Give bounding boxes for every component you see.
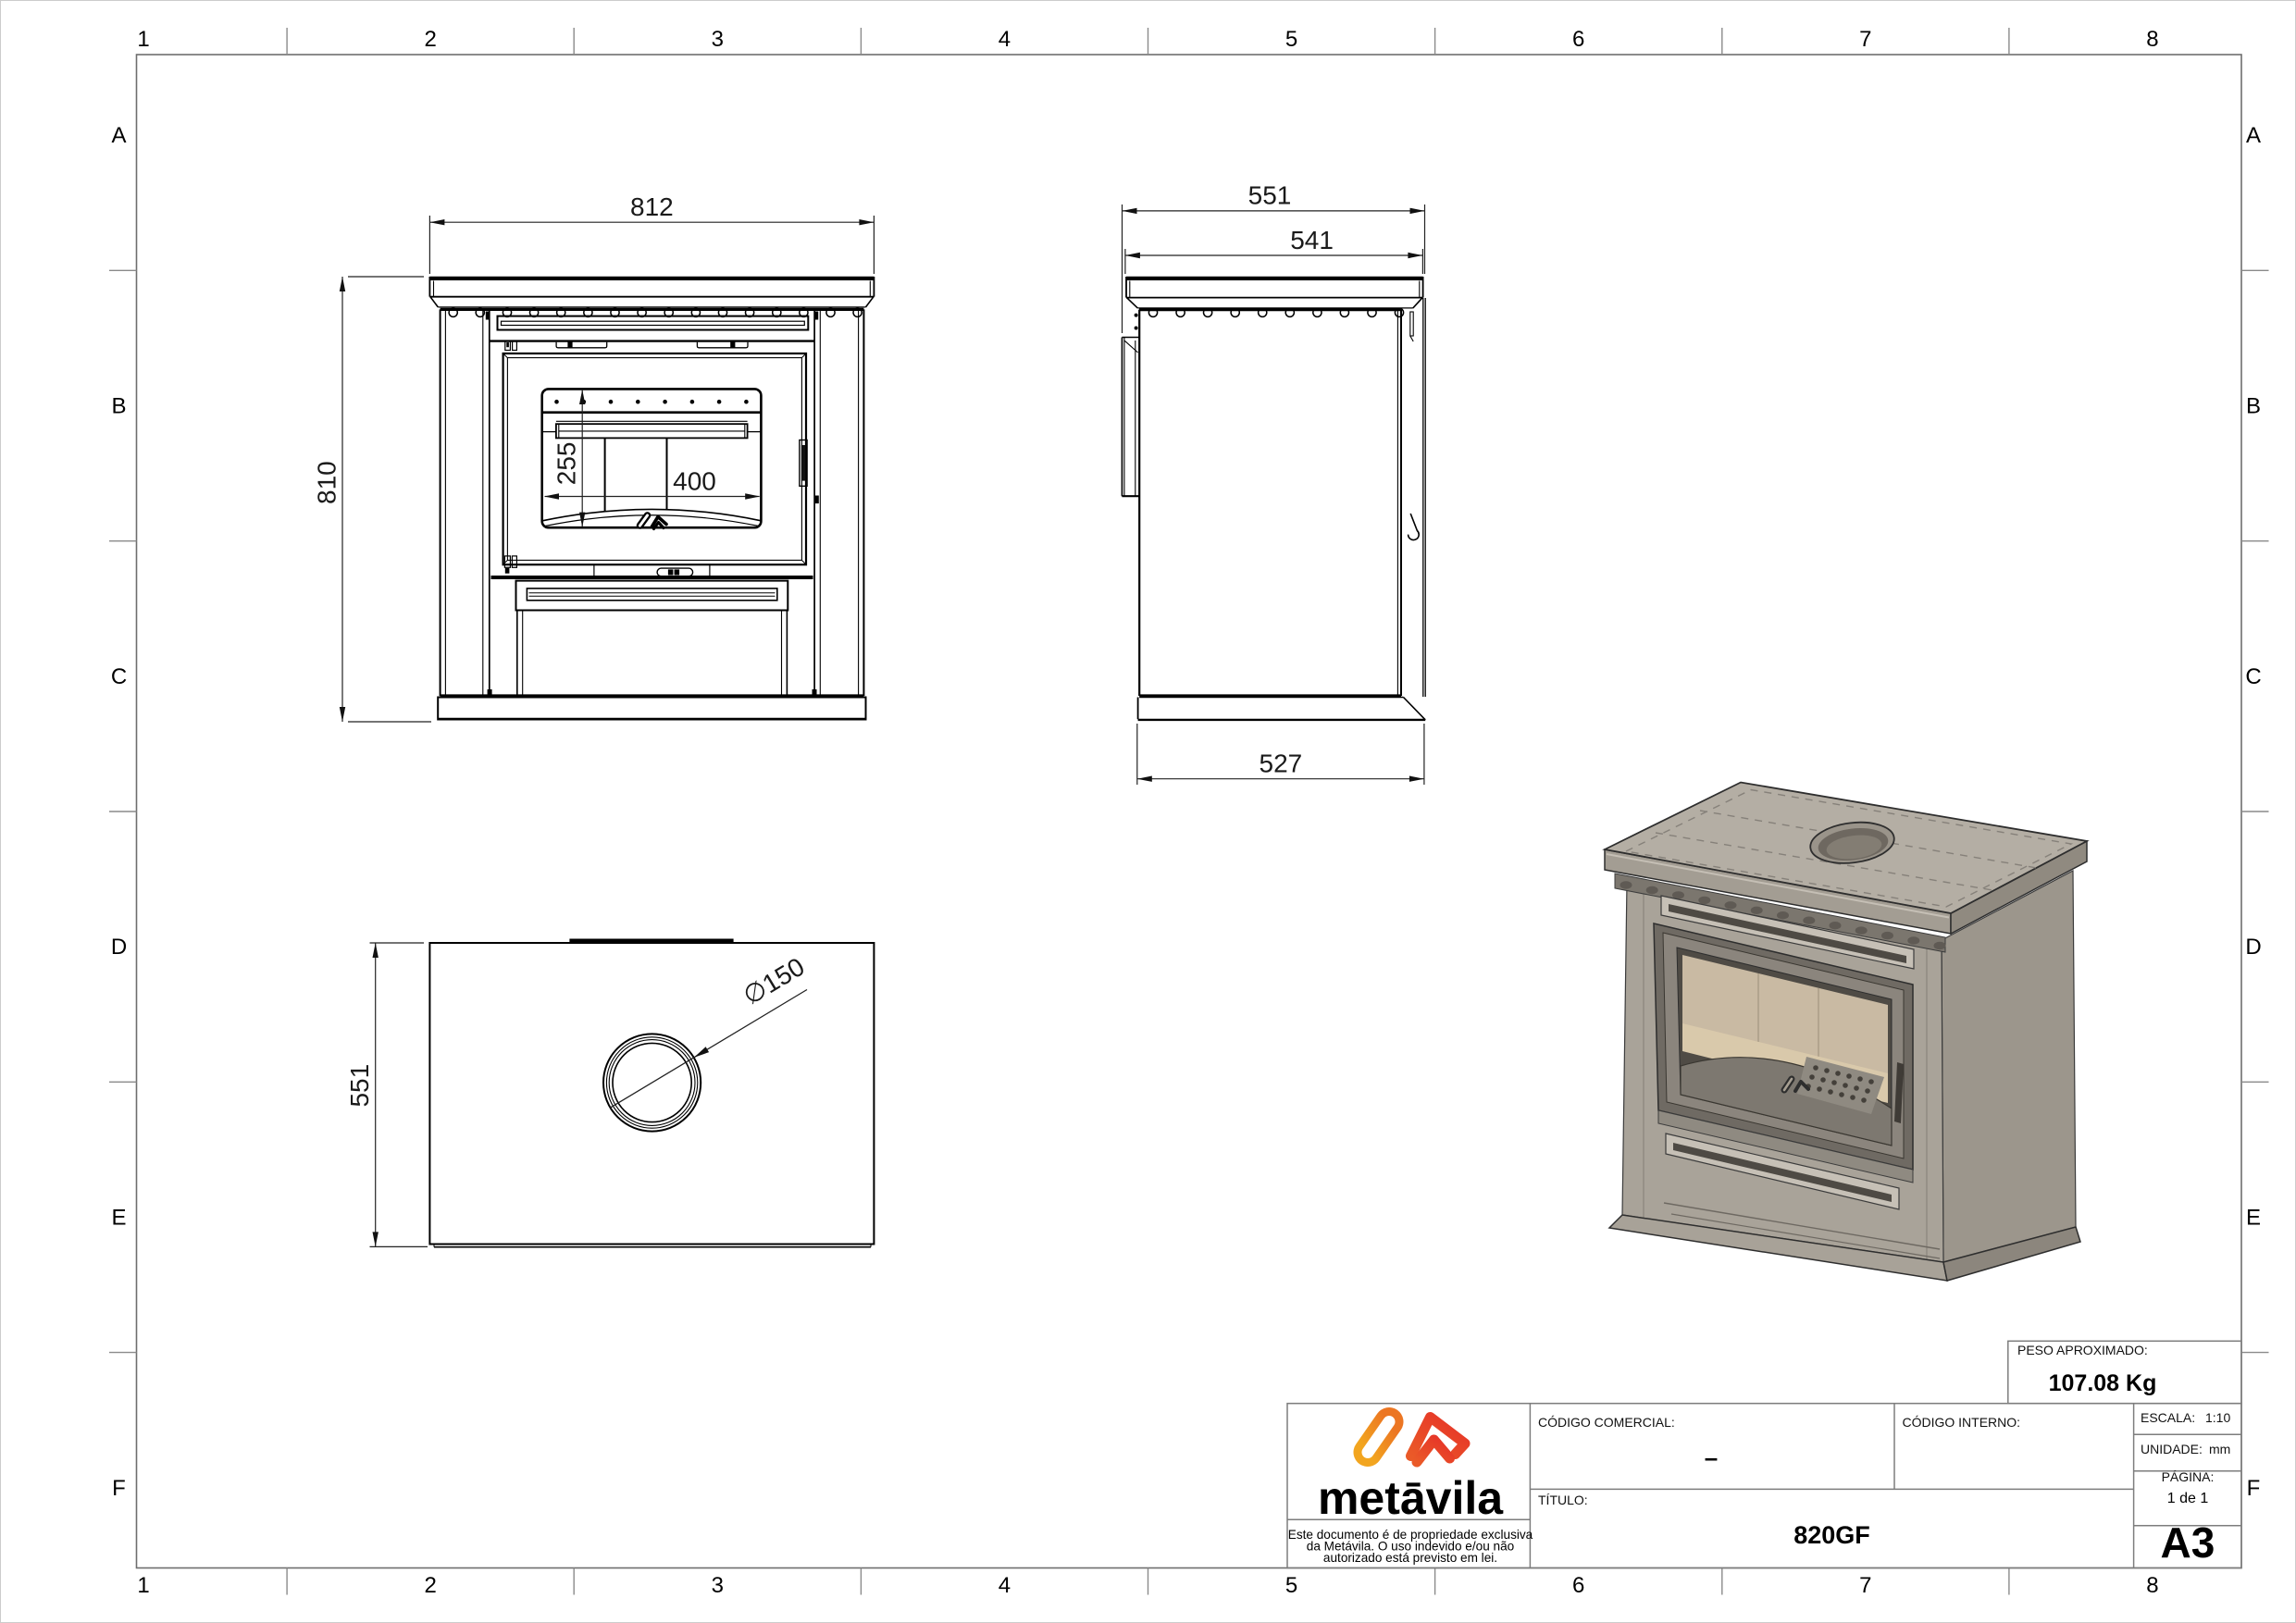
svg-text:TÍTULO:: TÍTULO: bbox=[1538, 1493, 1588, 1507]
svg-text:1: 1 bbox=[137, 27, 149, 52]
svg-text:551: 551 bbox=[345, 1064, 374, 1108]
svg-text:C: C bbox=[2245, 664, 2261, 689]
svg-text:107.08 Kg: 107.08 Kg bbox=[2049, 1370, 2157, 1396]
svg-text:2: 2 bbox=[425, 27, 437, 52]
svg-text:A3: A3 bbox=[2160, 1518, 2215, 1567]
svg-text:3: 3 bbox=[712, 27, 724, 52]
svg-text:8: 8 bbox=[2146, 27, 2158, 52]
svg-text:CÓDIGO COMERCIAL:: CÓDIGO COMERCIAL: bbox=[1538, 1415, 1675, 1430]
svg-text:CÓDIGO INTERNO:: CÓDIGO INTERNO: bbox=[1903, 1415, 2021, 1430]
svg-text:7: 7 bbox=[1859, 27, 1871, 52]
svg-text:7: 7 bbox=[1859, 1573, 1871, 1598]
svg-text:5: 5 bbox=[1285, 27, 1297, 52]
svg-text:810: 810 bbox=[313, 461, 341, 504]
svg-text:D: D bbox=[111, 935, 127, 960]
svg-text:812: 812 bbox=[630, 192, 674, 221]
svg-text:2: 2 bbox=[425, 1573, 437, 1598]
svg-text:400: 400 bbox=[673, 467, 716, 496]
svg-text:6: 6 bbox=[1572, 27, 1584, 52]
svg-text:mm: mm bbox=[2209, 1442, 2230, 1456]
svg-text:1 de 1: 1 de 1 bbox=[2167, 1491, 2209, 1506]
svg-text:A: A bbox=[2246, 123, 2261, 148]
svg-text:C: C bbox=[111, 664, 127, 689]
svg-text:metāvila: metāvila bbox=[1318, 1472, 1504, 1524]
svg-text:B: B bbox=[111, 394, 126, 419]
svg-text:541: 541 bbox=[1290, 226, 1334, 254]
svg-text:ESCALA:: ESCALA: bbox=[2141, 1410, 2195, 1425]
svg-text:E: E bbox=[2246, 1206, 2261, 1231]
svg-text:6: 6 bbox=[1572, 1573, 1584, 1598]
svg-text:8: 8 bbox=[2146, 1573, 2158, 1598]
svg-text:UNIDADE:: UNIDADE: bbox=[2141, 1442, 2203, 1456]
svg-text:A: A bbox=[111, 123, 126, 148]
svg-text:255: 255 bbox=[552, 442, 581, 486]
svg-text:5: 5 bbox=[1285, 1573, 1297, 1598]
svg-text:autorizado está previsto em le: autorizado está previsto em lei. bbox=[1323, 1551, 1497, 1565]
svg-text:F: F bbox=[2247, 1476, 2261, 1501]
svg-text:820GF: 820GF bbox=[1793, 1521, 1870, 1549]
svg-text:–: – bbox=[1705, 1443, 1718, 1471]
svg-text:527: 527 bbox=[1260, 750, 1303, 778]
svg-text:F: F bbox=[112, 1476, 126, 1501]
svg-text:D: D bbox=[2245, 935, 2261, 960]
svg-text:551: 551 bbox=[1248, 181, 1292, 210]
svg-text:4: 4 bbox=[999, 1573, 1011, 1598]
svg-text:1: 1 bbox=[137, 1573, 149, 1598]
svg-text:PESO APROXIMADO:: PESO APROXIMADO: bbox=[2017, 1343, 2148, 1357]
svg-text:4: 4 bbox=[999, 27, 1011, 52]
svg-text:PÁGINA:: PÁGINA: bbox=[2162, 1469, 2215, 1484]
svg-text:1:10: 1:10 bbox=[2205, 1410, 2230, 1425]
svg-text:E: E bbox=[111, 1206, 126, 1231]
svg-text:B: B bbox=[2246, 394, 2261, 419]
svg-text:3: 3 bbox=[712, 1573, 724, 1598]
